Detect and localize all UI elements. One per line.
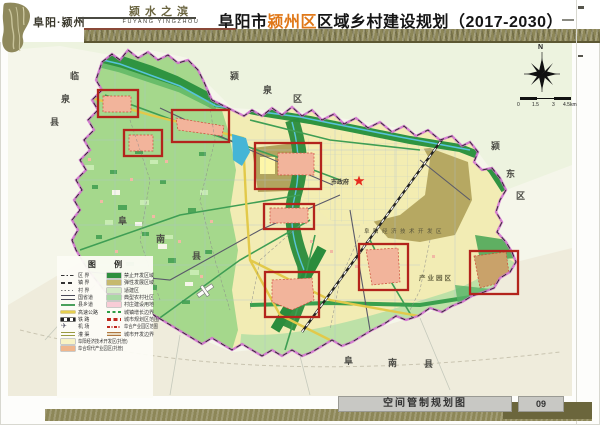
legend-swatch-color-f8f3c4: [61, 339, 75, 344]
paper-edge: [576, 0, 577, 425]
planning-document-page: 阜阳·颍州 颍水之滨 FUYANG YINGZHOU 阜阳市颍州区区域乡村建设规…: [0, 0, 600, 425]
legend-swatch-dot: [61, 290, 75, 291]
legend-item: 阜阳经济技术开发区(托管): [61, 338, 107, 345]
legend-swatch-bound-red-dot: [107, 326, 121, 328]
label-yingquan-district: 泉: [263, 86, 272, 95]
label-economic-dev-zone: 阜阳经济技术开发区: [364, 227, 445, 235]
legend-item: 禁止开发区域: [107, 272, 153, 279]
legend-item-label: 城市开发边界: [124, 331, 154, 338]
label-funan-county-west: 县: [192, 252, 201, 261]
legend-item: 铁 路: [61, 316, 107, 323]
legend-item-label: 适建区: [124, 287, 139, 294]
legend-item-label: 村 界: [78, 287, 89, 294]
legend-title: 图 例: [57, 256, 153, 272]
legend-item: 区 界: [61, 272, 107, 279]
legend-item-label: 城市规划区范围: [124, 316, 159, 323]
legend-item-label: 灌 渠: [78, 331, 89, 338]
legend-item: 城市规划区范围: [107, 316, 153, 323]
legend-swatch-color-d2eac4: [107, 288, 121, 293]
legend-item: 适建区: [107, 287, 153, 294]
legend-item-label: 禁止开发区域: [124, 272, 154, 279]
legend-item-label: 县乡道: [78, 301, 93, 308]
legend-item: 高速公路: [61, 308, 107, 315]
scale-tick-label: 0: [517, 102, 520, 108]
header-dash: [562, 19, 574, 21]
legend-swatch-bound-tan: [107, 332, 121, 337]
label-yingdong-district: 区: [516, 192, 525, 201]
scale-tick-label: 4.5km: [563, 102, 577, 108]
label-funan-county-west: 南: [156, 235, 165, 244]
legend-swatch-dashdot: [61, 275, 75, 277]
legend-item-label: 机 场: [78, 323, 89, 330]
legend-item-label: 弹性发展区域: [124, 279, 154, 286]
legend-swatch-bound-red: [107, 318, 121, 320]
legend-item: 城市开发边界: [107, 330, 153, 337]
label-yingquan-district: 颍: [230, 72, 239, 81]
legend-item: 县乡道: [61, 301, 107, 308]
legend-swatch-color-c6b96e: [107, 280, 121, 285]
legend-left-column: 区 界镇 界村 界国省道县乡道高速公路铁 路机 场灌 渠阜阳经济技术开发区(托管…: [61, 272, 107, 352]
legend-swatch-bound-green: [107, 311, 121, 313]
legend-swatch-dash: [61, 282, 75, 284]
band-red-line: [84, 28, 236, 30]
legend-swatch-road-dark: [61, 295, 75, 300]
edge-tick: [578, 6, 584, 9]
legend-item-label: 国省道: [78, 294, 93, 301]
legend-item-label: 典型农村社区: [124, 294, 154, 301]
legend-item: 村 界: [61, 287, 107, 294]
scale-tick-label: 3: [552, 102, 555, 108]
legend-item: 阜合现代产业园区(托管): [61, 345, 107, 352]
label-funan-county-west: 阜: [118, 217, 127, 226]
legend-item-label: 阜合现代产业园区(托管): [78, 345, 123, 352]
legend-item-label: 阜合产业园区范围: [124, 323, 158, 330]
label-funan-county-south: 南: [388, 359, 397, 368]
motto-english: FUYANG YINGZHOU: [96, 19, 226, 25]
label-yingdong-district: 东: [506, 170, 515, 179]
legend-swatch-color-2e8f3e: [107, 273, 121, 278]
legend-item-label: 区 界: [78, 272, 89, 279]
legend-right-column: 禁止开发区域弹性发展区域适建区典型农村社区村庄建设用地城镇增长边界城市规划区范围…: [107, 272, 153, 338]
legend-item: 城镇增长边界: [107, 308, 153, 315]
page-number: 09: [518, 396, 564, 412]
label-yingquan-district: 区: [293, 95, 302, 104]
label-linquan-county: 泉: [61, 95, 70, 104]
woven-band-top: [84, 29, 600, 43]
label-industrial-park: 产业园区: [419, 272, 453, 282]
legend-item: 国省道: [61, 294, 107, 301]
legend-item: 灌 渠: [61, 330, 107, 337]
legend-item: 机 场: [61, 323, 107, 330]
legend-item-label: 高速公路: [78, 309, 98, 316]
legend-swatch-rail: [61, 318, 75, 321]
map-sheet-caption: 空间管制规划图: [338, 396, 512, 412]
legend-swatch-color-a9daa4: [107, 295, 121, 300]
legend-swatch-road-yellow: [61, 311, 75, 314]
legend-panel: 图 例 区 界镇 界村 界国省道县乡道高速公路铁 路机 场灌 渠阜阳经济技术开发…: [57, 256, 153, 398]
legend-swatch-color-f0b68c: [61, 346, 75, 351]
label-linquan-county: 县: [50, 118, 59, 127]
edge-tick: [578, 55, 583, 57]
scale-tick-label: 1.5: [532, 102, 539, 108]
legend-item-label: 镇 界: [78, 279, 89, 286]
legend-swatch-canal: [61, 332, 75, 337]
legend-item-label: 阜阳经济技术开发区(托管): [78, 338, 128, 345]
label-funan-county-south: 阜: [344, 357, 353, 366]
legend-item: 弹性发展区域: [107, 279, 153, 286]
legend-item: 镇 界: [61, 279, 107, 286]
legend-item-label: 城镇增长边界: [124, 309, 154, 316]
label-funan-county-south: 县: [424, 360, 433, 369]
legend-item: 典型农村社区: [107, 294, 153, 301]
city-seal-icon: [1, 1, 33, 55]
compass-north-label: N: [538, 44, 543, 51]
label-linquan-county: 临: [70, 72, 79, 81]
legend-item-label: 村庄建设用地: [124, 301, 154, 308]
legend-item: 村庄建设用地: [107, 301, 153, 308]
label-city-government: 市政府: [331, 177, 349, 186]
label-yingdong-district: 颍: [491, 142, 500, 151]
legend-swatch-color-f8ccd6: [107, 302, 121, 307]
legend-item-label: 铁 路: [78, 316, 89, 323]
legend-swatch-airport: [61, 323, 75, 330]
legend-item: 阜合产业园区范围: [107, 323, 153, 330]
legend-swatch-road-green: [61, 304, 75, 307]
